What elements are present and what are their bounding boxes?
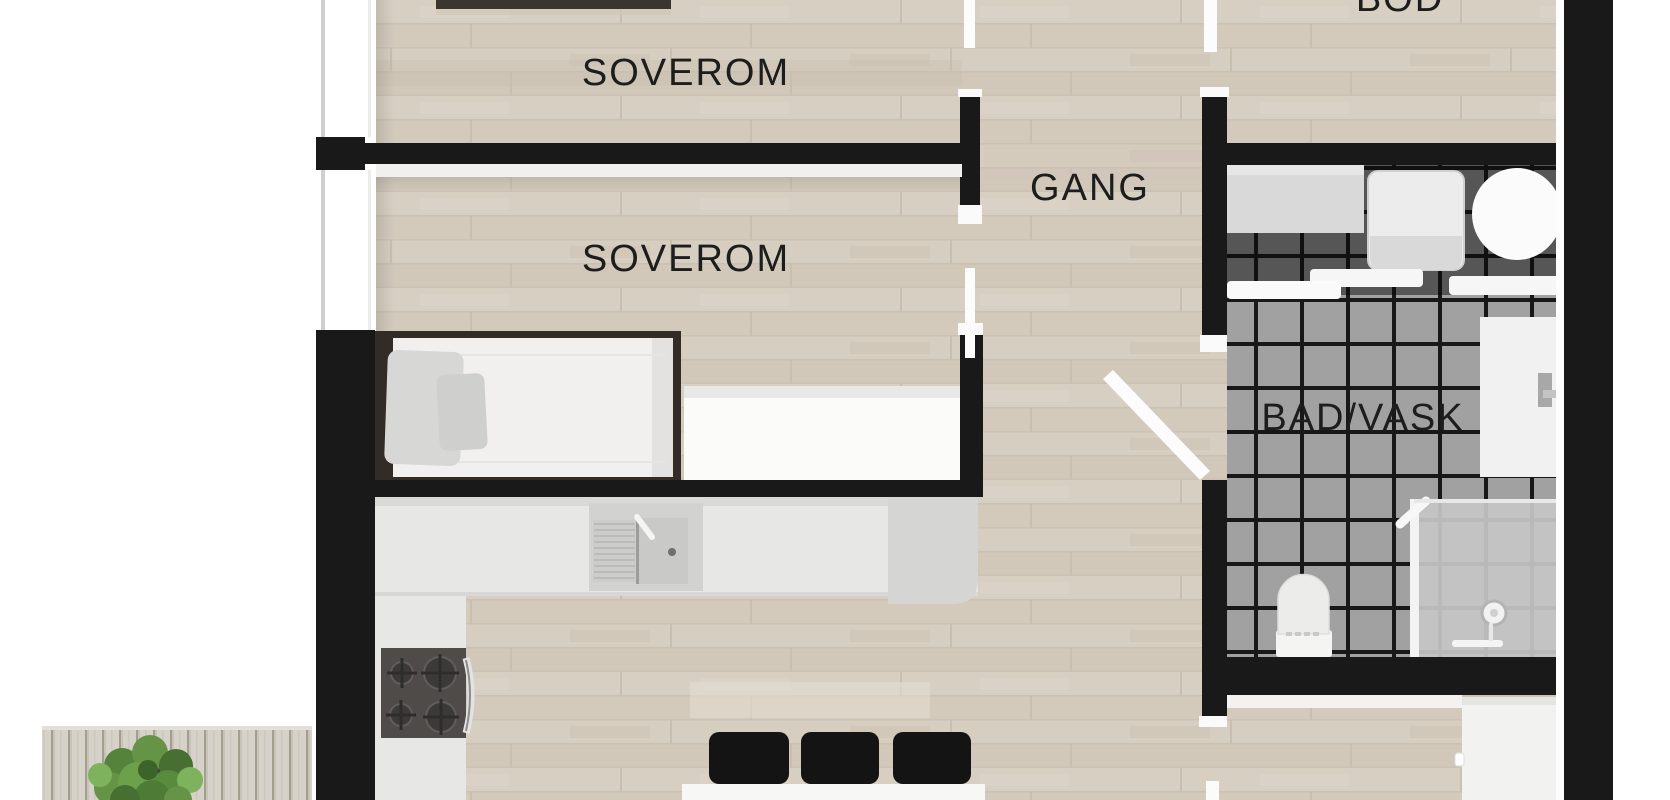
svg-text:SOVEROM: SOVEROM [582, 238, 790, 280]
svg-text:BAD/VASK: BAD/VASK [1261, 397, 1464, 439]
svg-text:GANG: GANG [1030, 167, 1150, 209]
svg-text:BOD: BOD [1356, 0, 1444, 20]
svg-text:SOVEROM: SOVEROM [582, 52, 790, 94]
